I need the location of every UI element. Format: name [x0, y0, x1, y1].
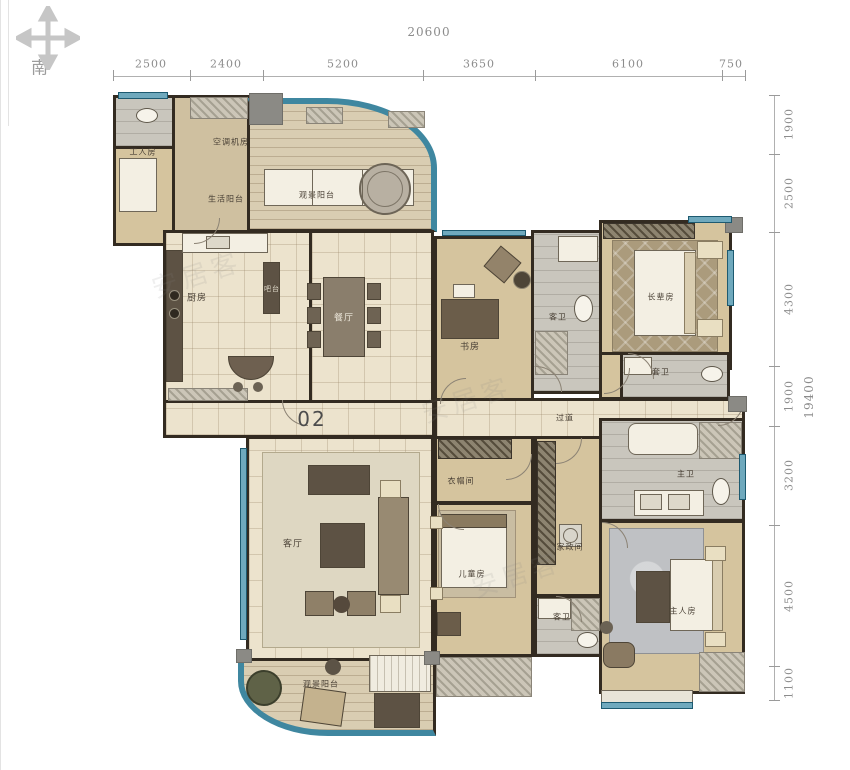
dim-right-seg: 3200 — [783, 459, 796, 491]
room-label-master-bath: 主卫 — [677, 469, 695, 480]
room-label-kitchen: 厨房 — [187, 291, 207, 304]
guest-bath-vanity — [558, 236, 598, 262]
nightstand — [705, 546, 726, 561]
room-label-housekeeping: 家政间 — [557, 542, 584, 553]
elder-bed-headboard — [684, 252, 696, 334]
counter-divider — [312, 170, 313, 205]
dining-chair — [307, 331, 321, 348]
stool — [233, 382, 243, 392]
cooktop-burner — [169, 308, 180, 319]
nightstand — [697, 241, 723, 259]
column — [249, 93, 283, 125]
window-living-left — [240, 448, 247, 640]
room-label-view-balcony: 观景阳台 — [303, 679, 339, 690]
maid-bed — [119, 158, 157, 212]
dim-tick — [769, 700, 780, 701]
window-master-bath-right — [739, 454, 746, 500]
dim-tick — [769, 95, 780, 96]
room-label-maid-room: 工人房 — [130, 147, 157, 158]
window-study — [442, 230, 526, 236]
room-kitchen — [163, 230, 312, 404]
dim-tick — [769, 426, 780, 427]
dining-chair — [367, 283, 381, 300]
compass-icon — [16, 6, 80, 70]
toilet-icon — [577, 632, 598, 648]
window-elder-right — [727, 250, 734, 306]
room-label-guest-bath: 客卫 — [549, 312, 567, 323]
stool — [325, 659, 341, 675]
dining-chair — [307, 283, 321, 300]
dim-top-seg: 5200 — [327, 58, 359, 71]
dim-tick — [190, 70, 191, 81]
lounge-chair — [300, 686, 346, 727]
shower-area — [699, 422, 742, 459]
chaise-chair — [603, 642, 635, 668]
dim-tick — [769, 232, 780, 233]
study-desk — [441, 299, 499, 339]
dim-right-seg: 4300 — [783, 283, 796, 315]
plant-icon — [246, 670, 282, 706]
room-label-bar-counter: 吧台 — [264, 284, 280, 294]
dim-tick — [769, 525, 780, 526]
nightstand — [705, 632, 726, 647]
dining-chair — [367, 307, 381, 324]
dim-top-seg: 6100 — [612, 58, 644, 71]
room-label-second-bath: 客卫 — [553, 612, 571, 623]
dim-line-right — [774, 95, 775, 700]
cooktop-burner — [169, 290, 180, 301]
vanity-basin — [668, 494, 690, 510]
equipment-gap — [436, 657, 532, 697]
dim-top-total: 20600 — [407, 25, 450, 39]
dim-top-seg: 750 — [719, 58, 743, 71]
stool — [253, 382, 263, 392]
window-master-balcony — [601, 702, 693, 709]
ac-unit — [306, 107, 343, 124]
stool — [600, 621, 613, 634]
room-label-elder-bedroom: 长辈房 — [648, 292, 675, 303]
room-label-service-balcony: 生活阳台 — [208, 194, 244, 205]
bathtub — [628, 423, 698, 455]
dim-tick — [769, 366, 780, 367]
side-table — [380, 480, 401, 498]
daybed — [369, 655, 431, 692]
elder-wardrobe — [603, 223, 695, 239]
desk-chair — [453, 284, 475, 298]
dim-right-seg: 1900 — [783, 380, 796, 412]
dim-tick — [263, 70, 264, 81]
dim-tick — [535, 70, 536, 81]
dim-top-seg: 3650 — [463, 58, 495, 71]
master-bed-headboard — [712, 559, 723, 631]
column — [728, 396, 747, 412]
dining-chair — [367, 331, 381, 348]
column — [236, 649, 252, 663]
dim-line-top — [113, 76, 745, 77]
nightstand — [430, 587, 443, 600]
room-label-top-view-balcony: 观景阳台 — [299, 190, 335, 201]
ceiling-fan-icon — [513, 271, 531, 289]
dim-tick — [769, 666, 780, 667]
room-label-dining: 餐厅 — [334, 311, 354, 324]
room-label-hallway: 过道 — [556, 413, 574, 424]
nightstand — [697, 319, 723, 337]
dim-tick — [113, 70, 114, 81]
dim-tick — [722, 70, 723, 81]
side-table — [380, 595, 401, 613]
coffee-table — [320, 523, 365, 568]
balcony-table — [374, 693, 420, 728]
window-maid-bath — [118, 92, 168, 99]
jacuzzi-inner — [367, 171, 403, 207]
armchair — [305, 591, 334, 616]
dining-chair — [307, 307, 321, 324]
corner-equipment — [699, 652, 745, 692]
dim-tick — [423, 70, 424, 81]
dim-right-seg: 1900 — [783, 108, 796, 140]
toilet-icon — [712, 478, 730, 505]
dim-tick — [769, 154, 780, 155]
unit-number-label: 02 — [297, 407, 326, 431]
room-label-kids-bedroom: 儿童房 — [459, 569, 486, 580]
window-elder-top — [688, 216, 732, 223]
sofa — [378, 497, 409, 595]
page-edge-line — [0, 0, 1, 770]
closet-wardrobe — [438, 439, 512, 459]
room-label-ensuite-bath: 套卫 — [652, 367, 670, 378]
media-console — [308, 465, 370, 495]
counter-divider — [362, 170, 363, 205]
armchair — [347, 591, 376, 616]
ac-unit — [388, 111, 425, 128]
toilet-icon — [574, 295, 593, 322]
kids-dresser — [437, 612, 461, 636]
dim-right-seg: 4500 — [783, 580, 796, 612]
dim-right-total: 19400 — [802, 375, 816, 418]
dim-tick — [745, 70, 746, 81]
dim-top-seg: 2500 — [135, 58, 167, 71]
toilet-icon — [701, 366, 723, 382]
dim-top-seg: 2400 — [210, 58, 242, 71]
dim-right-seg: 1100 — [783, 667, 796, 699]
room-label-walkin-closet: 衣帽间 — [448, 476, 475, 487]
room-label-study: 书房 — [460, 340, 480, 353]
column — [424, 651, 440, 665]
round-table — [333, 596, 350, 613]
tv-cabinet — [636, 571, 670, 623]
page-edge-line-2 — [8, 0, 9, 126]
room-label-master-bedroom: 主人房 — [670, 606, 697, 617]
nightstand — [430, 516, 443, 529]
vanity-basin — [640, 494, 662, 510]
storage-cabinets — [537, 441, 556, 565]
room-label-living: 客厅 — [283, 537, 303, 550]
dim-right-seg: 2500 — [783, 177, 796, 209]
corridor-shelving — [190, 97, 248, 119]
room-label-ac-platform: 空调机房 — [213, 137, 249, 148]
toilet-icon — [136, 108, 158, 123]
